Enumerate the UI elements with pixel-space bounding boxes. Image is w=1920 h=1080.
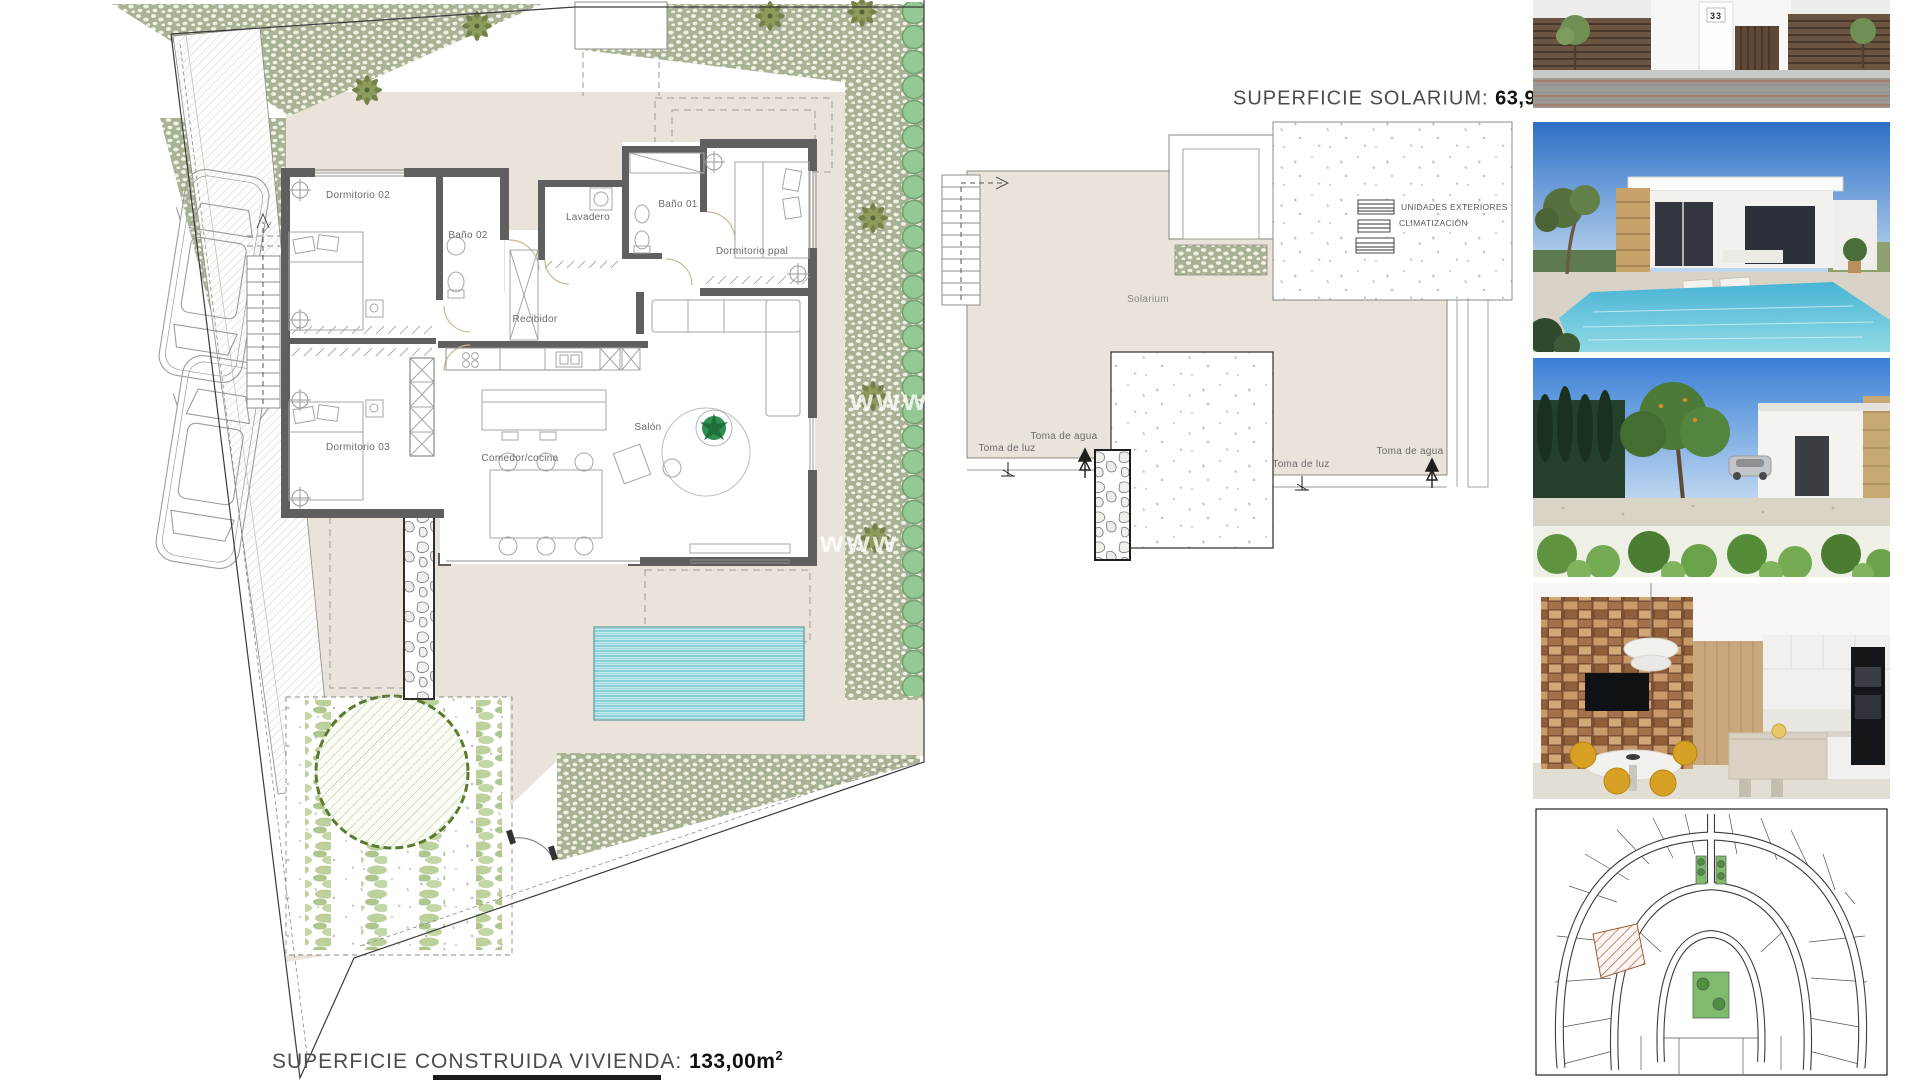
room-label-dormitorio03: Dormitorio 03	[326, 442, 390, 453]
room-label-dormitorio02: Dormitorio 02	[326, 190, 390, 201]
photo-villa-pool	[1533, 122, 1890, 352]
ac-units	[1356, 200, 1394, 253]
kitchen-interior-illustration	[1533, 583, 1890, 799]
courtyard-void	[1111, 352, 1273, 548]
solarium-area-label: Solarium	[1127, 294, 1169, 305]
room-label-bano01: Baño 01	[658, 199, 697, 210]
room-label-recibidor: Recibidor	[513, 314, 558, 325]
photo-street-facade: 33	[1533, 0, 1890, 108]
site-plan: Dormitorio 02 Baño 02 Lavadero Baño 01 D…	[112, 0, 929, 1078]
photo-site-plan	[1533, 806, 1890, 1078]
solarium-stone-pillar	[1095, 450, 1130, 560]
villa-pool-illustration	[1533, 122, 1890, 352]
ac-label-line1: UNIDADES EXTERIORES	[1401, 202, 1508, 212]
parked-car	[1729, 456, 1771, 480]
solarium-plan: UNIDADES EXTERIORES CLIMATIZACIÓN Solari…	[942, 122, 1512, 560]
room-label-salon: Salón	[634, 422, 661, 433]
vivienda-surface-sup: 2	[775, 1048, 783, 1063]
room-label-comedor-cocina: Comedor/cocina	[481, 453, 558, 464]
solarium-surface-title: SUPERFICIE SOLARIUM: 63,94m2	[1233, 86, 1574, 111]
pool	[594, 627, 804, 720]
ac-label-line2: CLIMATIZACIÓN	[1399, 218, 1468, 228]
street-facade-illustration: 33	[1533, 0, 1890, 108]
vivienda-surface-value: 133,00m	[689, 1050, 775, 1073]
house-number: 33	[1710, 11, 1722, 21]
photo-kitchen-interior	[1533, 583, 1890, 799]
toma-agua-right: Toma de agua	[1377, 446, 1444, 457]
vegetable-garden	[286, 696, 512, 955]
toma-luz-left: Toma de luz	[978, 443, 1035, 454]
toma-luz-right: Toma de luz	[1272, 459, 1329, 470]
photo-villa-garden	[1533, 358, 1890, 577]
room-label-lavadero: Lavadero	[566, 212, 610, 223]
garden-tree	[316, 696, 468, 848]
room-label-dormitorio-ppal: Dormitorio ppal	[716, 246, 788, 257]
solarium-surface-label: SUPERFICIE SOLARIUM:	[1233, 88, 1489, 110]
vivienda-surface-label: SUPERFICIE CONSTRUIDA VIVIENDA:	[272, 1050, 682, 1073]
watermark-2: www	[819, 526, 899, 559]
site-plan-illustration	[1533, 806, 1890, 1078]
cropped-text-fragment	[433, 1075, 661, 1080]
toma-agua-left: Toma de agua	[1031, 431, 1098, 442]
hedge-bushes	[896, 2, 924, 696]
watermark: www	[849, 384, 929, 417]
vivienda-surface-title: SUPERFICIE CONSTRUIDA VIVIENDA: 133,00m2	[272, 1048, 784, 1074]
brochure-page: Dormitorio 02 Baño 02 Lavadero Baño 01 D…	[0, 0, 1920, 1080]
room-label-bano02: Baño 02	[448, 230, 487, 241]
villa-garden-illustration	[1533, 358, 1890, 577]
stair-tower	[1169, 135, 1273, 275]
